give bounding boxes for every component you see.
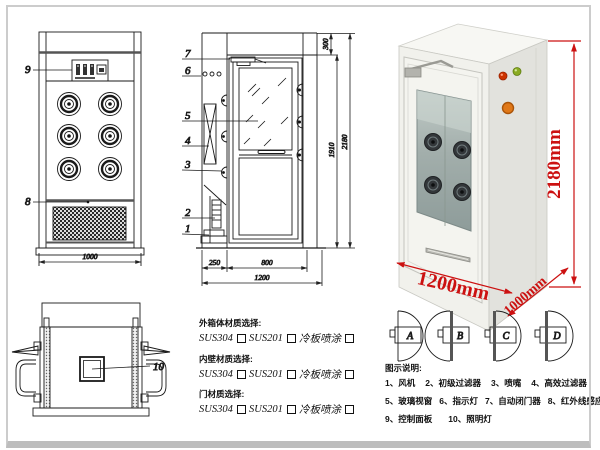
option-label: 冷板喷涂 (299, 367, 341, 382)
red-light-highlight (501, 74, 503, 76)
photo-nozzle-icon (425, 134, 442, 151)
checkbox-door-sus201[interactable] (287, 405, 296, 414)
dim-250: 250 (209, 258, 221, 267)
nozzle-icon (58, 158, 81, 181)
checkbox-inner-sus201[interactable] (287, 370, 296, 379)
nozzle-icon (58, 125, 81, 148)
option-label: SUS304 (199, 369, 233, 380)
red-indicator-light (499, 72, 507, 80)
control-panel-icon (72, 60, 108, 81)
callout-5: 5 (185, 110, 191, 122)
door-section (229, 58, 302, 243)
photo-nozzle-icon (454, 142, 471, 159)
top-view-drawing: 10 (12, 303, 170, 416)
legend-item: 10、照明灯 (448, 413, 491, 425)
material-group-title-door: 门材质选择: (199, 388, 244, 400)
material-group-title-inner: 内壁材质选择: (199, 353, 253, 365)
legend-item: 3、喷嘴 (491, 377, 521, 389)
side-nozzle-icons (222, 95, 228, 178)
callout-3: 3 (184, 159, 191, 171)
door-option-b-label: B (457, 331, 463, 342)
green-light-highlight (515, 69, 517, 71)
photo-door (404, 57, 482, 303)
svg-text:1000: 1000 (83, 252, 98, 261)
left-door-hardware-icon (12, 342, 41, 402)
nozzle-icon (99, 93, 122, 116)
material-options-inner: SUS304 SUS201 冷板喷涂 (199, 367, 354, 382)
legend-item: 6、指示灯 (439, 395, 478, 407)
option-label: 冷板喷涂 (299, 331, 341, 346)
section-view-drawing: 7 6 5 4 3 2 1 300 1910 2180 250 (182, 33, 355, 286)
section-width-dimensions: 250 800 1200 (202, 250, 322, 286)
green-indicator-light (513, 68, 521, 76)
legend-row-1: 1、风机 2、初级过滤器 3、喷嘴 4、高效过滤器 (385, 377, 587, 389)
option-label: SUS201 (249, 369, 283, 380)
dim-300: 300 (321, 38, 330, 51)
checkbox-inner-sus304[interactable] (237, 370, 246, 379)
checkbox-outer-sus201[interactable] (287, 334, 296, 343)
dim-800: 800 (261, 258, 273, 267)
callout-6: 6 (185, 65, 191, 77)
nozzle-grid-icons (58, 93, 122, 181)
checkbox-outer-sus304[interactable] (237, 334, 246, 343)
legend-item: 4、高效过滤器 (531, 377, 587, 389)
door-option-a-label: A (406, 331, 414, 342)
dim-1200: 1200 (255, 273, 270, 282)
product-photo: 2180mm 1200mm 1000mm (397, 24, 581, 331)
legend-row-3: 9、控制面板 10、照明灯 (385, 413, 492, 425)
indicator-lights-icon (203, 72, 221, 76)
callout-1: 1 (185, 223, 191, 235)
glass-hatch (244, 78, 288, 146)
primary-filter-icon (204, 104, 216, 164)
material-options-door: SUS304 SUS201 冷板喷涂 (199, 402, 354, 417)
air-return-grille (53, 207, 126, 240)
legend-item: 9、控制面板 (385, 413, 432, 425)
photo-nozzle-icon (425, 177, 442, 194)
legend-item: 2、初级过滤器 (425, 377, 481, 389)
dim-1910: 1910 (327, 142, 336, 157)
legend-item: 5、玻璃视窗 (385, 395, 432, 407)
legend-title: 图示说明: (385, 362, 595, 374)
photo-dim-height: 2180mm (544, 129, 565, 199)
legend-row-2: 5、玻璃视窗 6、指示灯 7、自动闭门器 8、红外线感应器 (385, 395, 600, 407)
front-view-drawing: 9 8 1000 (25, 32, 144, 266)
front-width-dimension: 1000 (39, 252, 141, 266)
nozzle-icon (58, 93, 81, 116)
material-group-title-outer: 外箱体材质选择: (199, 317, 261, 329)
dim-2180: 2180 (340, 134, 349, 149)
emergency-button (503, 103, 514, 114)
nozzle-icon (99, 125, 122, 148)
fan-unit-icon (201, 196, 227, 243)
nozzle-icon (99, 158, 122, 181)
callout-10: 10 (153, 361, 165, 373)
photo-nozzle-icon (454, 184, 471, 201)
legend-item: 7、自动闭门器 (485, 395, 541, 407)
door-option-d-label: D (552, 331, 561, 342)
callout-9: 9 (25, 64, 31, 76)
door-option-c-label: C (503, 331, 510, 342)
checkbox-inner-coldplate[interactable] (345, 370, 354, 379)
callout-2: 2 (185, 207, 191, 219)
legend-item: 1、风机 (385, 377, 415, 389)
checkbox-outer-coldplate[interactable] (345, 334, 354, 343)
legend-item: 8、红外线感应器 (548, 395, 600, 407)
callout-8: 8 (25, 196, 31, 208)
callout-4: 4 (185, 135, 191, 147)
air-shower-spec-sheet: 9 8 1000 (0, 0, 600, 450)
option-label: SUS304 (199, 404, 233, 415)
door-handle-icon (258, 151, 285, 154)
checkbox-door-sus304[interactable] (237, 405, 246, 414)
option-label: 冷板喷涂 (299, 402, 341, 417)
material-options-outer: SUS304 SUS201 冷板喷涂 (199, 331, 354, 346)
option-label: SUS201 (249, 404, 283, 415)
option-label: SUS304 (199, 333, 233, 344)
callout-7: 7 (185, 48, 191, 60)
checkbox-door-coldplate[interactable] (345, 405, 354, 414)
door-option-d: D (535, 311, 573, 361)
option-label: SUS201 (249, 333, 283, 344)
door-option-b: B (425, 311, 469, 361)
door-option-a: A (390, 311, 423, 361)
